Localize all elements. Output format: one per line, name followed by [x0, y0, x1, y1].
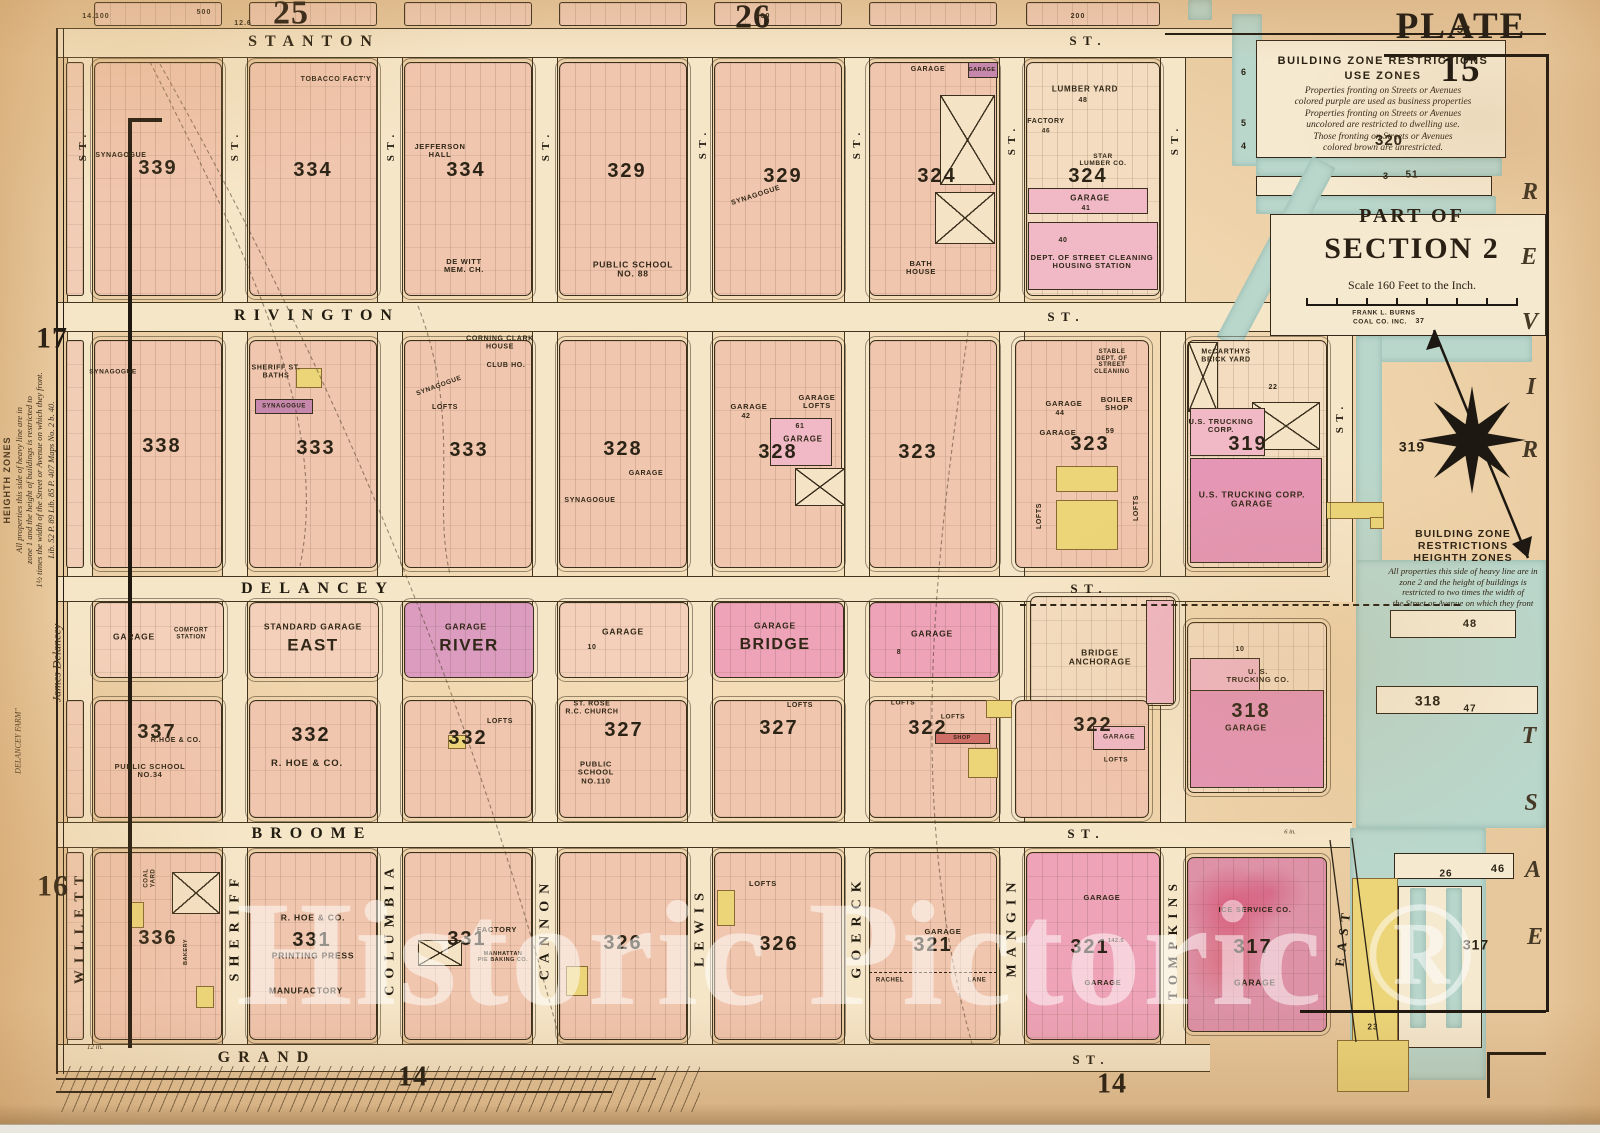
crossed-lot — [418, 940, 462, 966]
section-panel: PART OF SECTION 2 Scale 160 Feet to the … — [1292, 205, 1532, 306]
map-block — [249, 602, 379, 678]
map-block — [404, 2, 532, 26]
left-margin-zone-panel: BUILDING ZONE RESTRICTIONS HEIGHTH ZONES… — [0, 330, 84, 630]
crossed-lot — [935, 192, 995, 244]
map-block — [249, 852, 377, 1040]
map-block — [94, 602, 224, 678]
map-block — [559, 340, 687, 568]
map-block — [66, 62, 84, 296]
building-lot — [986, 700, 1012, 718]
map-block — [1026, 2, 1160, 26]
map-block — [714, 62, 842, 296]
building-lot — [1190, 658, 1260, 694]
building-lot — [1056, 500, 1118, 550]
street-band — [1327, 315, 1353, 602]
map-block — [869, 340, 997, 568]
river-water — [1188, 0, 1212, 20]
height-zones-title: BUILDING ZONE RESTRICTIONS — [1375, 528, 1551, 552]
pier-label: 319 — [1399, 439, 1425, 454]
map-block — [714, 2, 842, 26]
map-block — [94, 62, 222, 296]
map-block — [94, 700, 222, 818]
building-lot — [1146, 600, 1174, 704]
scale-text: Scale 160 Feet to the Inch. — [1292, 278, 1532, 293]
river-water — [1256, 158, 1502, 176]
street-band — [222, 58, 248, 1044]
river-pier — [1376, 686, 1538, 714]
building-lot — [448, 735, 466, 749]
river-letter: A — [1525, 857, 1541, 883]
building-lot — [1190, 458, 1322, 563]
left-margin-note: All properties this side of heavy line a… — [14, 330, 44, 630]
map-block — [1026, 852, 1160, 1040]
page-edge-shadow — [0, 1104, 1600, 1124]
street-band — [844, 58, 870, 1044]
street-band — [56, 822, 1352, 848]
map-block — [404, 602, 534, 678]
building-lot — [968, 748, 998, 778]
plate-ref: 14 — [1097, 1070, 1127, 1101]
height-zones-subtitle: HEIGHTH ZONES — [1375, 552, 1551, 564]
map-block — [404, 340, 532, 568]
building-lot — [770, 418, 832, 466]
river-letter: R — [1522, 437, 1538, 463]
map-block — [94, 340, 222, 568]
river-letter: I — [1526, 374, 1535, 400]
river-letter: E — [1527, 924, 1543, 950]
section-part-of: PART OF — [1292, 205, 1532, 228]
crossed-lot — [172, 872, 220, 914]
plate-ref: 16 — [37, 870, 69, 903]
street-band — [56, 302, 1358, 332]
map-block — [1015, 700, 1149, 818]
atlas-map-sheet: PLATE 15 BUILDING ZONE RESTRICTIONS USE … — [0, 0, 1600, 1132]
street-band — [532, 58, 558, 1044]
use-zones-subtitle: USE ZONES — [1264, 70, 1502, 82]
use-zones-note: Properties fronting on Streets or Avenue… — [1264, 86, 1502, 154]
street-band — [56, 28, 1232, 58]
scale-bar — [1306, 298, 1518, 306]
river-pier — [1390, 610, 1516, 638]
map-block — [559, 852, 687, 1040]
ink-line — [1300, 1010, 1546, 1013]
left-margin-subtitle: HEIGHTH ZONES — [2, 330, 12, 630]
building-lot — [296, 368, 322, 388]
river-water — [1446, 888, 1462, 1028]
building-lot — [566, 966, 588, 996]
crossed-lot — [1188, 342, 1218, 412]
building-lot — [1056, 466, 1118, 492]
map-block — [559, 2, 687, 26]
river-letter: R — [1522, 179, 1538, 205]
ink-line — [1487, 1052, 1490, 1098]
use-zones-panel: BUILDING ZONE RESTRICTIONS USE ZONES Pro… — [1264, 55, 1502, 154]
map-block — [249, 62, 377, 296]
section-title: SECTION 2 — [1292, 232, 1532, 266]
map-block — [1187, 857, 1327, 1032]
map-block — [249, 700, 377, 818]
map-block — [404, 700, 532, 818]
map-block — [66, 700, 84, 818]
street-band — [1160, 58, 1186, 1044]
street-band — [377, 58, 403, 1044]
map-block — [869, 602, 999, 678]
river-water — [1360, 336, 1532, 362]
building-lot — [968, 62, 998, 78]
ink-line — [128, 118, 132, 1048]
height-zones-panel: BUILDING ZONE RESTRICTIONS HEIGHTH ZONES… — [1375, 528, 1551, 609]
ink-line — [1487, 1052, 1546, 1055]
map-block — [559, 62, 687, 296]
use-zones-title: BUILDING ZONE RESTRICTIONS — [1264, 55, 1502, 67]
building-lot — [1028, 222, 1158, 290]
building-lot — [1190, 690, 1324, 788]
building-lot — [1093, 726, 1145, 750]
map-block — [559, 602, 689, 678]
ink-line — [56, 1078, 656, 1080]
ink-line — [128, 118, 162, 122]
building-lot — [717, 890, 735, 926]
map-block — [66, 852, 84, 1040]
ink-line — [56, 1091, 612, 1093]
height-zones-note: All properties this side of heavy line a… — [1375, 566, 1551, 609]
river-bulkhead — [1337, 1040, 1409, 1092]
building-lot — [1028, 188, 1148, 214]
compass-rose-icon — [1418, 330, 1532, 558]
river-pier — [1394, 853, 1514, 879]
crossed-lot — [940, 95, 995, 185]
left-margin-refs: Lib. 52 P. 89 Lib. 85 P. 407 Maps No. 2 … — [46, 330, 56, 630]
building-lot — [1190, 408, 1265, 456]
river-water — [1410, 888, 1426, 1028]
crossed-lot — [795, 468, 845, 506]
building-lot — [935, 733, 990, 744]
map-block — [714, 852, 842, 1040]
zone-dashed-line — [869, 972, 997, 973]
map-block — [714, 602, 844, 678]
map-block — [559, 700, 687, 818]
map-block — [249, 2, 377, 26]
map-block — [94, 2, 222, 26]
margin-note: DELANCEY FARM" — [15, 708, 24, 774]
building-lot — [255, 399, 313, 414]
map-block — [869, 2, 997, 26]
building-lot — [196, 986, 214, 1008]
map-block — [404, 62, 532, 296]
map-block — [869, 852, 997, 1040]
street-band — [687, 58, 713, 1044]
map-block — [714, 700, 842, 818]
